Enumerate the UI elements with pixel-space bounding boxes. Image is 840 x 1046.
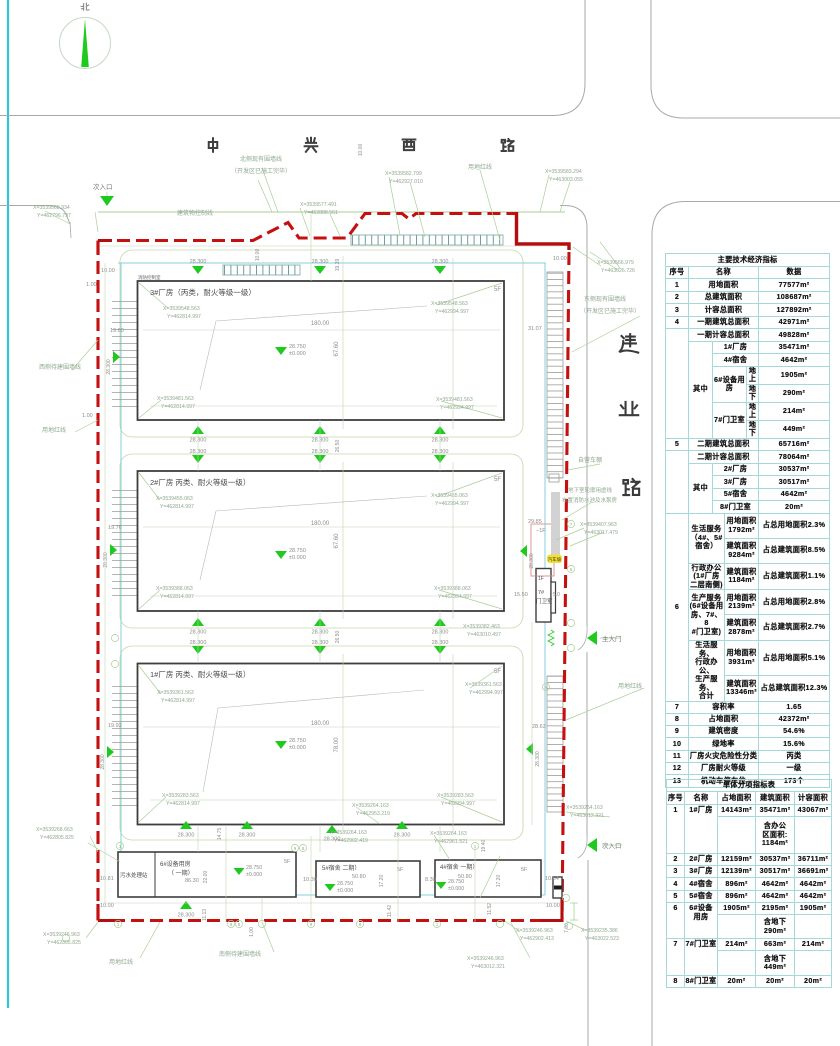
svg-text:消防控制室: 消防控制室 <box>138 274 161 281</box>
svg-text:门卫室: 门卫室 <box>536 597 553 605</box>
svg-text:28.750: 28.750 <box>289 344 306 350</box>
svg-text:1: 1 <box>474 844 477 849</box>
svg-text:Y=463003.055: Y=463003.055 <box>549 177 583 183</box>
svg-text:东侧现有围墙线: 东侧现有围墙线 <box>584 295 626 303</box>
svg-text:1.00: 1.00 <box>86 282 97 288</box>
svg-text:Y=462927.010: Y=462927.010 <box>389 179 423 185</box>
svg-text:Y=463012.321: Y=463012.321 <box>471 964 505 970</box>
svg-text:Y=462814.997: Y=462814.997 <box>161 698 195 704</box>
svg-text:180.00: 180.00 <box>311 321 330 327</box>
svg-text:180.00: 180.00 <box>311 521 330 527</box>
svg-text:26.50: 26.50 <box>335 440 341 453</box>
svg-text:Y=462814.997: Y=462814.997 <box>167 314 201 320</box>
svg-text:50.80: 50.80 <box>458 874 472 880</box>
svg-text:X=3539246.963: X=3539246.963 <box>467 956 504 962</box>
svg-text:19.60: 19.60 <box>110 328 124 334</box>
svg-text:X=3539548.563: X=3539548.563 <box>431 301 468 307</box>
svg-text:28.750: 28.750 <box>289 738 306 744</box>
svg-text:±0.000: ±0.000 <box>289 351 306 357</box>
svg-text:28.300: 28.300 <box>529 553 535 569</box>
svg-text:X=3539455.063: X=3539455.063 <box>431 493 468 499</box>
svg-text:28.750: 28.750 <box>289 548 306 554</box>
svg-text:1#厂房 丙类、耐火等级一级）: 1#厂房 丙类、耐火等级一级） <box>150 669 250 679</box>
svg-text:±0.000: ±0.000 <box>448 886 464 892</box>
svg-text:11.52: 11.52 <box>487 903 493 915</box>
svg-text:Y=463012.321: Y=463012.321 <box>570 813 604 819</box>
svg-text:1: 1 <box>117 922 120 927</box>
svg-text:用地红线: 用地红线 <box>42 426 66 434</box>
svg-text:9: 9 <box>230 922 233 927</box>
svg-text:28.300: 28.300 <box>432 259 449 265</box>
svg-text:10.30: 10.30 <box>303 877 317 883</box>
svg-text:（开发区已施工完毕）: （开发区已施工完毕） <box>231 167 291 175</box>
svg-text:10.00: 10.00 <box>100 903 114 909</box>
svg-text:Y=463022.523: Y=463022.523 <box>585 936 619 942</box>
svg-text:X=3539455.063: X=3539455.063 <box>156 496 193 502</box>
svg-text:Y=462961.521: Y=462961.521 <box>434 839 468 845</box>
svg-text:X=3539283.563: X=3539283.563 <box>437 793 474 799</box>
svg-text:8.30: 8.30 <box>425 877 436 883</box>
svg-text:31.07: 31.07 <box>528 326 542 332</box>
svg-text:4#宿舍 一期）: 4#宿舍 一期） <box>440 863 478 871</box>
svg-text:±0.000: ±0.000 <box>289 555 306 561</box>
svg-text:X=3539582.799: X=3539582.799 <box>385 171 422 177</box>
svg-text:X=3539548.563: X=3539548.563 <box>163 306 200 312</box>
svg-text:6#设备用房: 6#设备用房 <box>160 860 191 868</box>
svg-text:11.13: 11.13 <box>202 909 208 921</box>
svg-text:自营车棚: 自营车棚 <box>578 456 602 464</box>
svg-text:14.75: 14.75 <box>217 828 223 841</box>
svg-text:5F: 5F <box>284 859 291 865</box>
svg-text:22.00: 22.00 <box>203 871 209 884</box>
svg-text:67.60: 67.60 <box>334 341 340 357</box>
svg-text:主大门: 主大门 <box>602 634 622 643</box>
svg-text:Y=462902.419: Y=462902.419 <box>334 838 368 844</box>
svg-text:Y=463010.497: Y=463010.497 <box>467 632 501 638</box>
svg-text:±0.000: ±0.000 <box>246 872 262 878</box>
svg-text:±0.000: ±0.000 <box>337 888 353 894</box>
svg-text:19.40: 19.40 <box>481 840 487 853</box>
svg-text:28.300: 28.300 <box>178 833 195 839</box>
svg-text:7#: 7# <box>538 590 545 596</box>
svg-text:5F: 5F <box>494 287 501 293</box>
svg-text:5#宿舍 二期）: 5#宿舍 二期） <box>322 864 360 872</box>
svg-text:X=3539481.563: X=3539481.563 <box>157 396 194 402</box>
svg-text:1F: 1F <box>538 576 544 582</box>
svg-text:X=3539388.063: X=3539388.063 <box>434 586 471 592</box>
svg-text:26.50: 26.50 <box>335 631 341 644</box>
svg-text:3#厂房（丙类，耐火等级一级）: 3#厂房（丙类，耐火等级一级） <box>150 287 256 297</box>
svg-text:（开发区已施工完毕）: （开发区已施工完毕） <box>580 307 640 315</box>
svg-text:19.76: 19.76 <box>108 525 122 531</box>
svg-text:X=3539246.963: X=3539246.963 <box>516 928 553 934</box>
svg-text:10.00: 10.00 <box>255 249 261 262</box>
svg-text:10.00: 10.00 <box>358 144 364 157</box>
svg-text:5F: 5F <box>494 669 501 675</box>
svg-text:Y=462805.825: Y=462805.825 <box>40 835 74 841</box>
svg-text:7.00: 7.00 <box>564 923 570 933</box>
svg-text:Y=462902.413: Y=462902.413 <box>520 936 554 942</box>
svg-text:X=3539246.963: X=3539246.963 <box>43 932 80 938</box>
svg-text:1.00: 1.00 <box>249 927 255 937</box>
svg-text:布置消防水池及水泵房: 布置消防水池及水泵房 <box>562 496 618 504</box>
svg-text:X=3539382.463: X=3539382.463 <box>463 624 500 630</box>
svg-text:17.20: 17.20 <box>379 875 385 888</box>
svg-text:28.750: 28.750 <box>337 881 353 887</box>
svg-text:X=3539388.063: X=3539388.063 <box>156 586 193 592</box>
svg-text:X=3539264.163: X=3539264.163 <box>566 805 603 811</box>
svg-text:X=3539264.163: X=3539264.163 <box>352 803 389 809</box>
svg-text:X=3539264.163: X=3539264.163 <box>330 830 367 836</box>
svg-text:6: 6 <box>570 567 573 572</box>
svg-text:X=3539235.386: X=3539235.386 <box>581 928 618 934</box>
svg-text:Y=462814.997: Y=462814.997 <box>161 404 195 410</box>
svg-text:9: 9 <box>310 922 313 927</box>
svg-text:（ 一期）: （ 一期） <box>168 869 194 877</box>
svg-text:17.20: 17.20 <box>496 875 502 888</box>
svg-text:X=3539268.663: X=3539268.663 <box>36 827 73 833</box>
svg-text:Y=462994.997: Y=462994.997 <box>469 690 503 696</box>
svg-text:Y=462994.997: Y=462994.997 <box>435 309 469 315</box>
svg-text:次入口: 次入口 <box>93 182 113 191</box>
svg-text:北侧现有围墙线: 北侧现有围墙线 <box>240 155 282 163</box>
svg-text:南侧待建围墙线: 南侧待建围墙线 <box>219 950 261 958</box>
svg-text:28.63: 28.63 <box>532 724 546 730</box>
svg-text:28.300: 28.300 <box>103 552 109 568</box>
svg-text:5.0: 5.0 <box>553 592 560 598</box>
svg-text:15.50: 15.50 <box>514 592 528 598</box>
svg-text:X=3539577.491: X=3539577.491 <box>300 202 337 208</box>
svg-text:5F: 5F <box>494 477 501 483</box>
svg-text:28.300: 28.300 <box>535 751 541 767</box>
svg-text:Y=462814.997: Y=462814.997 <box>160 594 194 600</box>
svg-text:汽车坡: 汽车坡 <box>548 556 562 563</box>
svg-text:8: 8 <box>359 922 362 927</box>
svg-text:西侧待建围墙线: 西侧待建围墙线 <box>39 363 81 371</box>
svg-text:28.300: 28.300 <box>312 259 329 265</box>
svg-text:X=3539361.563: X=3539361.563 <box>157 690 194 696</box>
svg-text:86.30: 86.30 <box>185 878 199 884</box>
svg-text:1: 1 <box>436 922 439 927</box>
svg-text:10.00: 10.00 <box>553 256 567 262</box>
svg-text:X=3539283.563: X=3539283.563 <box>162 793 199 799</box>
svg-text:地下室轮廓用虚线: 地下室轮廓用虚线 <box>568 486 613 494</box>
svg-text:Y=463017.479: Y=463017.479 <box>584 530 618 536</box>
svg-text:Y=462994.997: Y=462994.997 <box>441 801 475 807</box>
svg-text:X=3539361.563: X=3539361.563 <box>465 682 502 688</box>
svg-text:10.64: 10.64 <box>545 876 559 882</box>
svg-text:28.300: 28.300 <box>178 913 195 919</box>
svg-text:X=3539583.294: X=3539583.294 <box>545 169 582 175</box>
svg-text:X=3539566.979: X=3539566.979 <box>597 260 634 266</box>
svg-text:28.300: 28.300 <box>239 833 256 839</box>
svg-text:X=3539264.163: X=3539264.163 <box>430 831 467 837</box>
svg-text:用地红线: 用地红线 <box>468 163 492 171</box>
svg-text:Y=462796.797: Y=462796.797 <box>37 213 71 219</box>
svg-text:8: 8 <box>238 922 241 927</box>
svg-text:X=3539407.963: X=3539407.963 <box>580 522 617 528</box>
svg-text:−1F: −1F <box>536 528 546 534</box>
svg-text:28.300: 28.300 <box>106 359 112 375</box>
svg-text:10.00: 10.00 <box>546 903 560 909</box>
svg-text:67.60: 67.60 <box>334 533 340 549</box>
svg-text:29.85: 29.85 <box>528 519 542 525</box>
svg-text:10.00: 10.00 <box>101 268 115 274</box>
svg-text:78.00: 78.00 <box>334 737 340 753</box>
svg-text:10.81: 10.81 <box>100 876 114 882</box>
svg-text:2#厂房 丙类、耐火等级一级）: 2#厂房 丙类、耐火等级一级） <box>150 477 250 487</box>
svg-text:28.300: 28.300 <box>394 833 411 839</box>
svg-text:X=3539568.934: X=3539568.934 <box>33 205 70 211</box>
svg-text:28.300: 28.300 <box>190 259 207 265</box>
svg-text:5F: 5F <box>521 867 528 873</box>
svg-text:用地红线: 用地红线 <box>618 682 642 690</box>
svg-text:±0.000: ±0.000 <box>289 745 306 751</box>
svg-text:Y=462994.997: Y=462994.997 <box>435 501 469 507</box>
svg-text:次入口: 次入口 <box>602 841 622 850</box>
svg-text:19.39: 19.39 <box>335 259 341 272</box>
svg-text:19.92: 19.92 <box>108 723 122 729</box>
svg-text:污水处理站: 污水处理站 <box>120 871 148 879</box>
svg-text:9: 9 <box>294 846 297 851</box>
svg-text:Y=462814.997: Y=462814.997 <box>160 504 194 510</box>
svg-text:11.42: 11.42 <box>387 905 393 917</box>
svg-text:Y=463026.726: Y=463026.726 <box>601 268 635 274</box>
svg-text:建筑物控制线: 建筑物控制线 <box>177 209 213 217</box>
svg-text:180.00: 180.00 <box>311 721 330 727</box>
svg-text:Y=462888.561: Y=462888.561 <box>304 210 338 216</box>
svg-text:8: 8 <box>302 846 305 851</box>
svg-text:X=3539481.563: X=3539481.563 <box>436 397 473 403</box>
svg-text:50.80: 50.80 <box>352 874 366 880</box>
svg-text:7: 7 <box>570 522 573 527</box>
svg-text:用地红线: 用地红线 <box>109 958 133 966</box>
svg-text:28.750: 28.750 <box>246 865 262 871</box>
svg-text:Y=462953.219: Y=462953.219 <box>356 811 390 817</box>
svg-text:Y=462814.997: Y=462814.997 <box>166 801 200 807</box>
svg-text:1.00: 1.00 <box>82 413 93 419</box>
svg-text:Y=462994.997: Y=462994.997 <box>438 594 472 600</box>
